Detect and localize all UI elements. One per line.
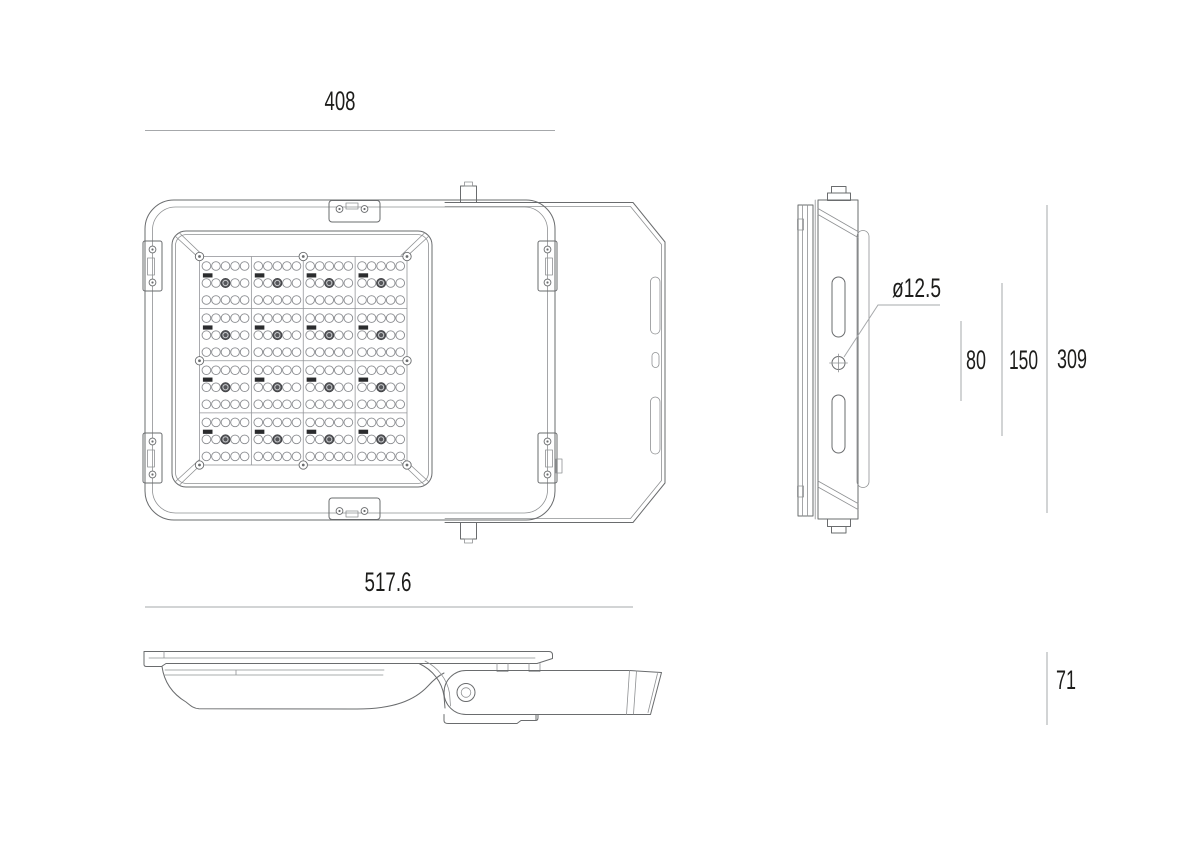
clip-right-bottom — [538, 433, 562, 483]
dimension-profile-height: 71 — [1047, 652, 1076, 725]
profile-arm — [444, 671, 661, 715]
profile-body — [162, 667, 444, 710]
dimension-hole-spacing-inner: 80 — [961, 321, 986, 401]
side-mount-tab-bottom — [828, 519, 851, 533]
led-module — [306, 418, 353, 461]
led-module — [254, 418, 301, 461]
profile-back-plate — [144, 652, 553, 672]
led-module — [306, 314, 353, 357]
led-module — [202, 418, 249, 461]
profile-lens-edge — [165, 670, 384, 675]
dim-label-hole-spacing-outer: 150 — [1009, 345, 1038, 375]
dimension-overall-length: 517.6 — [145, 567, 633, 607]
led-module — [358, 418, 405, 461]
profile-view — [144, 652, 662, 724]
side-view — [798, 187, 870, 534]
side-mount-tab-top — [828, 187, 851, 201]
pivot-bolt — [457, 684, 475, 702]
led-module — [358, 314, 405, 357]
led-module — [306, 262, 353, 305]
dimension-mount-hole: ø12.5 — [844, 273, 941, 357]
housing-slot-top — [651, 277, 661, 334]
led-grid — [195, 252, 411, 469]
side-mount-hole — [830, 354, 848, 372]
dim-label-profile-height: 71 — [1056, 665, 1076, 695]
dim-label-hole-spacing-inner: 80 — [966, 345, 986, 375]
dim-label-overall-length: 517.6 — [365, 567, 412, 597]
dimension-front-width: 408 — [145, 86, 555, 131]
front-frame — [145, 200, 555, 520]
front-view — [143, 182, 665, 543]
led-module — [202, 314, 249, 357]
led-module — [202, 366, 249, 409]
housing-slot-bottom — [651, 397, 661, 454]
led-module — [202, 262, 249, 305]
housing-hole-center — [652, 353, 659, 368]
led-module — [254, 366, 301, 409]
dimension-body-height: 309 — [1047, 205, 1087, 513]
led-module — [254, 314, 301, 357]
dimension-hole-spacing-outer: 150 — [1002, 283, 1038, 436]
clip-top-center — [329, 201, 380, 223]
dim-label-mount-hole: ø12.5 — [892, 273, 941, 303]
mount-tab-bottom — [461, 523, 477, 544]
side-slot-bottom — [832, 395, 845, 453]
clip-bottom-center — [329, 498, 380, 520]
mount-tab-top — [461, 182, 477, 203]
led-module — [306, 366, 353, 409]
led-module — [254, 262, 301, 305]
dim-label-body-height: 309 — [1057, 344, 1087, 374]
led-module — [358, 366, 405, 409]
technical-drawing: 408 517.6 ø12.5 80 150 309 71 — [0, 0, 1191, 842]
led-module — [358, 262, 405, 305]
side-front-frame-edge — [798, 200, 816, 519]
dim-label-front-width: 408 — [325, 86, 356, 116]
side-slot-top — [832, 277, 845, 337]
